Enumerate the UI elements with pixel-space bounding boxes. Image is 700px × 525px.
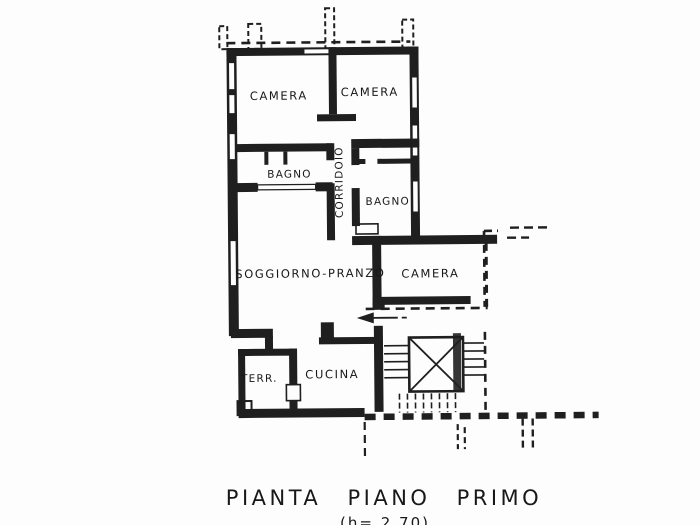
plan-height-note: (h= 2.70)	[340, 514, 430, 525]
caption-block: PIANTA PIANO PRIMO (h= 2.70)	[226, 486, 542, 525]
room-label-terrazzo: TERR.	[240, 373, 278, 385]
room-label-camera-right: CAMERA	[401, 266, 459, 281]
stair-treads-right	[464, 343, 484, 375]
bathroom-right-walls	[357, 159, 411, 164]
room-label-corridoio: CORRIDOIO	[333, 146, 346, 218]
room-label-bagno-right: BAGNO	[365, 196, 410, 208]
entrance-arrow	[357, 312, 410, 323]
scan-smudge	[453, 333, 462, 391]
stairwell	[384, 333, 485, 413]
top-balcony-dashes	[219, 8, 413, 50]
stair-treads-left	[384, 346, 408, 378]
room-label-cucina: CUCINA	[305, 367, 359, 381]
room-label-camera-top-right: CAMERA	[341, 85, 399, 100]
floor-plan: CAMERA CAMERA BAGNO CORRIDOIO BAGNO SOGG…	[219, 6, 599, 459]
room-label-camera-top-left: CAMERA	[250, 88, 308, 103]
room-label-bagno-left: BAGNO	[267, 168, 312, 180]
stair-treads-bottom	[399, 393, 455, 412]
room-label-soggiorno-pranzo: SOGGIORNO-PRANZO	[235, 266, 385, 281]
boundary-dashes	[363, 230, 599, 458]
floor-plan-canvas: CAMERA CAMERA BAGNO CORRIDOIO BAGNO SOGG…	[0, 0, 700, 525]
plan-caption: PIANTA PIANO PRIMO	[226, 486, 542, 510]
